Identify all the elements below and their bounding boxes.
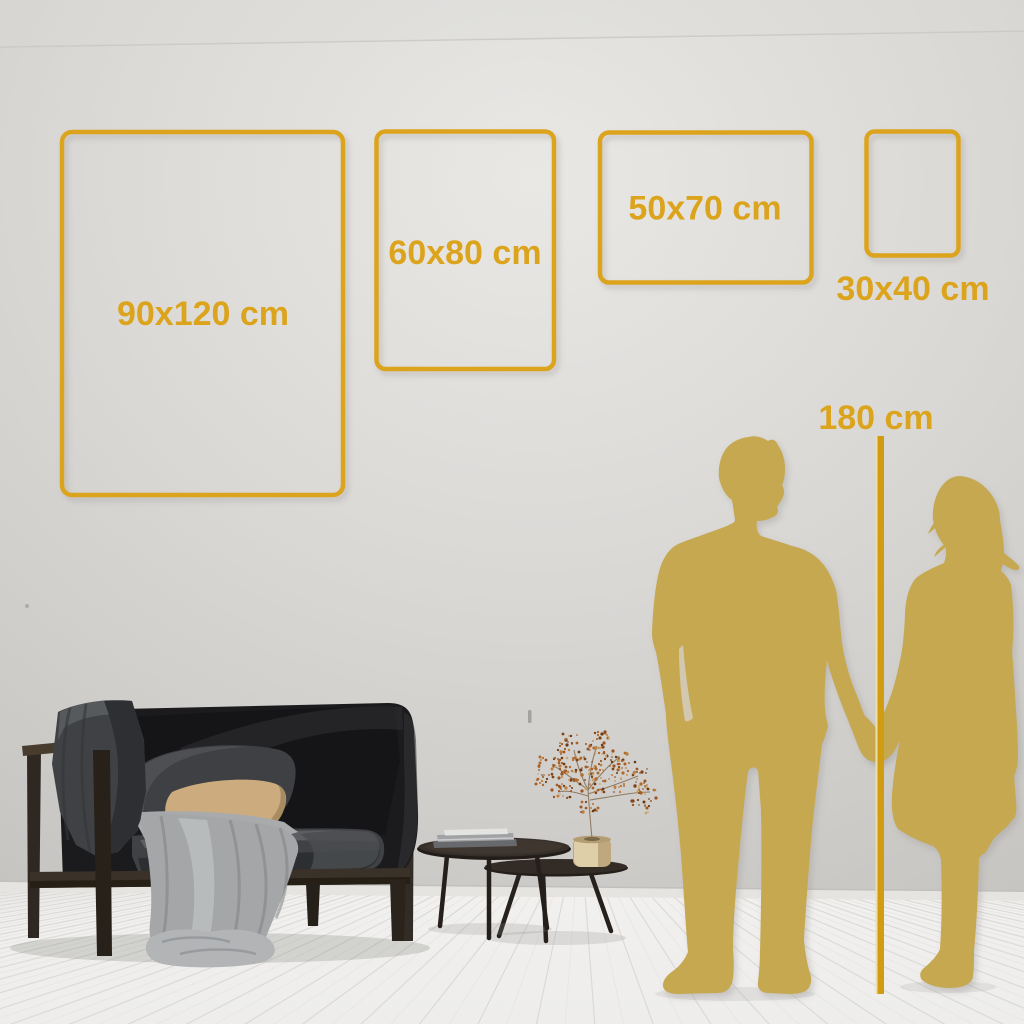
svg-text:50x70 cm: 50x70 cm: [628, 190, 781, 228]
svg-text:90x120 cm: 90x120 cm: [117, 295, 289, 333]
svg-text:30x40 cm: 30x40 cm: [836, 270, 989, 308]
svg-text:180 cm: 180 cm: [818, 399, 933, 437]
svg-text:60x80 cm: 60x80 cm: [388, 234, 541, 272]
